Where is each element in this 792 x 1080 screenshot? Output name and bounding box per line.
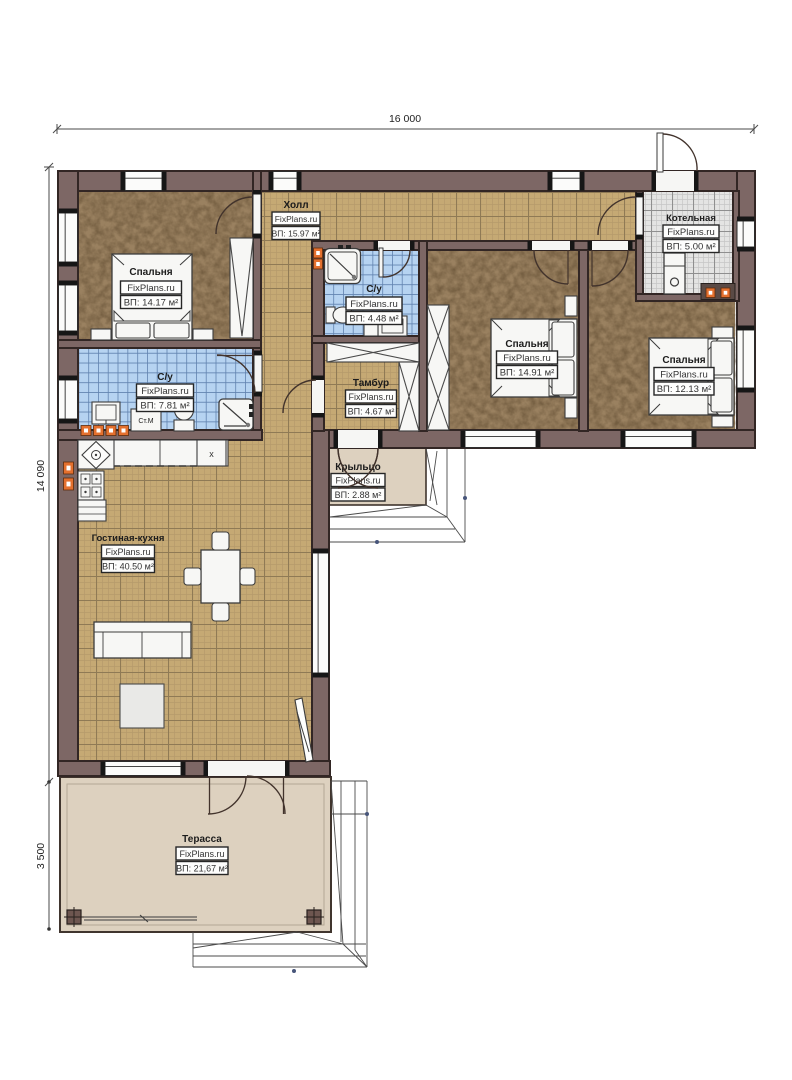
svg-text:FixPlans.ru: FixPlans.ru [141, 386, 189, 397]
svg-text:С/у: С/у [157, 372, 173, 383]
svg-text:ВП: 14.17 м²: ВП: 14.17 м² [124, 298, 179, 309]
svg-text:Гостиная-кухня: Гостиная-кухня [92, 533, 165, 544]
svg-text:FixPlans.ru: FixPlans.ru [348, 392, 393, 402]
svg-text:FixPlans.ru: FixPlans.ru [275, 214, 318, 224]
svg-text:С/у: С/у [366, 284, 382, 295]
svg-text:ВП: 12.13 м²: ВП: 12.13 м² [657, 384, 712, 395]
svg-text:FixPlans.ru: FixPlans.ru [127, 283, 175, 294]
svg-text:ВП: 15.97 м²: ВП: 15.97 м² [272, 229, 321, 239]
svg-text:Холл: Холл [283, 200, 308, 211]
svg-text:ВП: 40.50 м²: ВП: 40.50 м² [102, 562, 154, 572]
svg-text:ВП: 21,67 м²: ВП: 21,67 м² [176, 864, 228, 874]
svg-text:Терасса: Терасса [182, 834, 222, 845]
svg-text:ВП: 4.48 м²: ВП: 4.48 м² [349, 314, 398, 325]
svg-text:FixPlans.ru: FixPlans.ru [667, 227, 715, 238]
svg-text:FixPlans.ru: FixPlans.ru [335, 476, 380, 486]
svg-text:Ст.М: Ст.М [138, 418, 153, 425]
svg-text:3 500: 3 500 [35, 843, 47, 869]
svg-text:FixPlans.ru: FixPlans.ru [179, 849, 224, 859]
svg-text:ВП: 5.00 м²: ВП: 5.00 м² [666, 242, 715, 253]
svg-text:FixPlans.ru: FixPlans.ru [660, 370, 708, 381]
svg-text:Котельная: Котельная [666, 213, 716, 224]
svg-text:FixPlans.ru: FixPlans.ru [503, 353, 551, 364]
svg-text:ВП: 4.67 м²: ВП: 4.67 м² [348, 407, 395, 417]
svg-text:FixPlans.ru: FixPlans.ru [105, 547, 150, 557]
svg-text:Спальня: Спальня [662, 355, 705, 366]
svg-text:Спальня: Спальня [129, 267, 172, 278]
svg-text:Спальня: Спальня [505, 339, 548, 350]
svg-text:16 000: 16 000 [389, 113, 421, 125]
svg-text:x: x [209, 449, 214, 459]
svg-text:Тамбур: Тамбур [353, 377, 389, 389]
svg-text:14 090: 14 090 [35, 460, 47, 492]
svg-text:ВП: 14.91 м²: ВП: 14.91 м² [500, 368, 555, 379]
svg-text:Крыльцо: Крыльцо [335, 462, 381, 473]
svg-text:ВП: 2.88 м²: ВП: 2.88 м² [335, 490, 382, 500]
svg-text:FixPlans.ru: FixPlans.ru [350, 299, 398, 310]
svg-text:ВП: 7.81 м²: ВП: 7.81 м² [140, 401, 189, 412]
